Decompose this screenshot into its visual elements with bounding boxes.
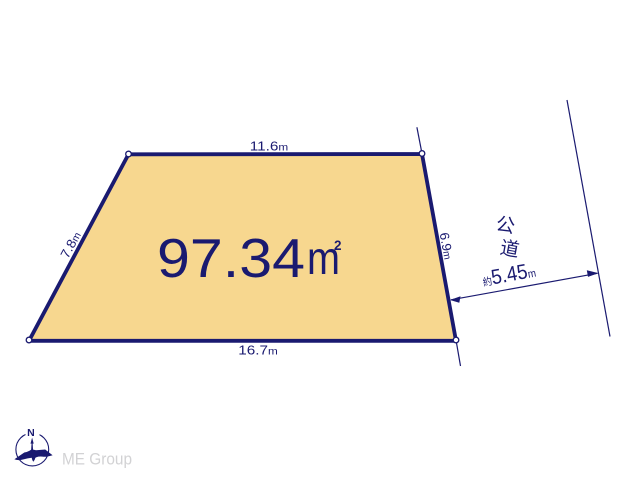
svg-text:97.34: 97.34: [157, 227, 305, 289]
svg-text:道: 道: [498, 237, 521, 262]
svg-text:ME Group: ME Group: [62, 450, 132, 469]
svg-text:2: 2: [334, 238, 342, 253]
svg-text:N: N: [27, 427, 35, 439]
svg-text:公: 公: [494, 214, 516, 238]
